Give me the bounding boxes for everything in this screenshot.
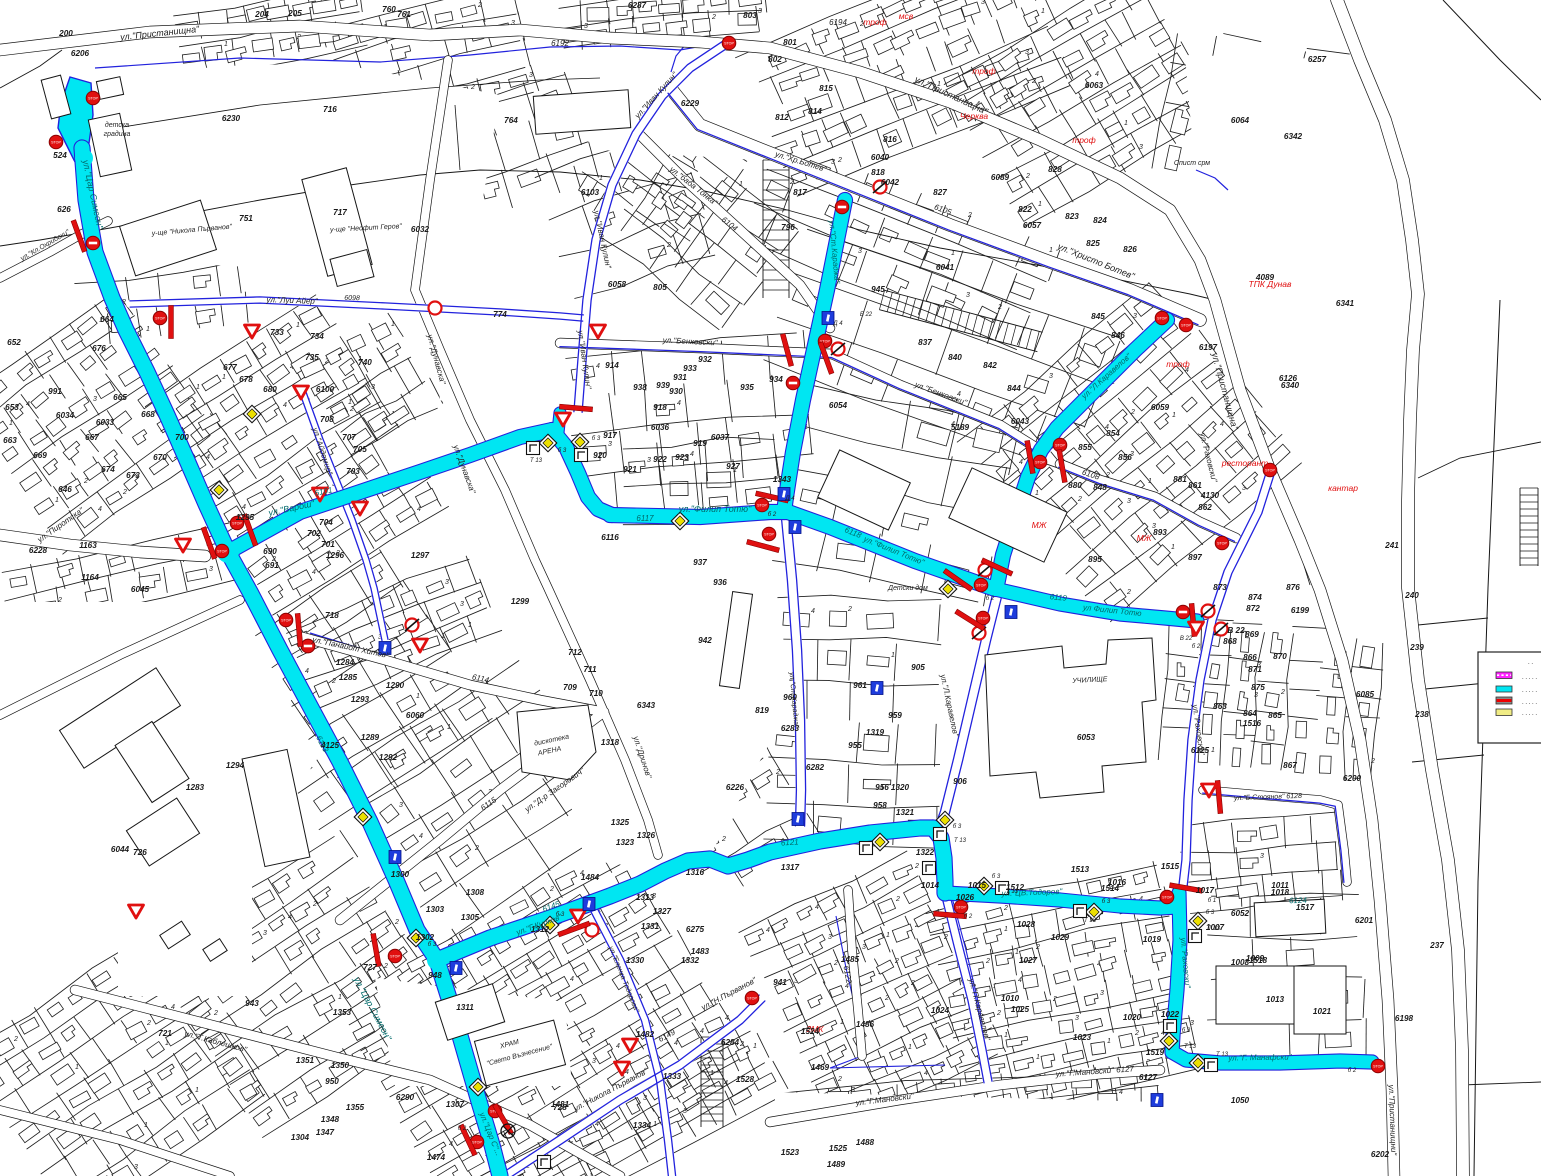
svg-text:1485: 1485 bbox=[841, 955, 860, 964]
svg-text:626: 626 bbox=[57, 205, 71, 214]
svg-text:6034: 6034 bbox=[56, 411, 75, 420]
svg-text:950: 950 bbox=[325, 1077, 339, 1086]
svg-text:2: 2 bbox=[358, 0, 363, 1]
svg-text:844: 844 bbox=[1007, 384, 1021, 393]
svg-text:1016: 1016 bbox=[1108, 878, 1127, 887]
svg-text:1: 1 bbox=[753, 1043, 757, 1050]
svg-text:824: 824 bbox=[1093, 216, 1107, 225]
svg-text:961: 961 bbox=[853, 681, 867, 690]
svg-text:869: 869 bbox=[1245, 630, 1259, 639]
svg-text:3: 3 bbox=[981, 0, 985, 6]
svg-text:Т 13: Т 13 bbox=[1216, 1052, 1229, 1058]
svg-text:691: 691 bbox=[265, 561, 279, 570]
svg-text:3: 3 bbox=[966, 292, 970, 299]
svg-text:930: 930 bbox=[669, 387, 683, 396]
svg-text:6041: 6041 bbox=[936, 263, 955, 272]
svg-text:1516: 1516 bbox=[1243, 719, 1262, 728]
svg-text:6054: 6054 bbox=[829, 401, 848, 410]
svg-text:872: 872 bbox=[1246, 604, 1260, 613]
svg-text:1: 1 bbox=[891, 652, 895, 659]
svg-text:. . . . .: . . . . . bbox=[1522, 711, 1537, 717]
svg-text:3: 3 bbox=[1025, 49, 1029, 56]
svg-text:861: 861 bbox=[1188, 481, 1202, 490]
svg-text:1330: 1330 bbox=[626, 956, 645, 965]
svg-text:1: 1 bbox=[1107, 1038, 1111, 1045]
svg-text:3: 3 bbox=[1139, 144, 1143, 151]
svg-text:2: 2 bbox=[711, 14, 716, 21]
svg-text:653: 653 bbox=[5, 403, 19, 412]
svg-text:937: 937 bbox=[693, 558, 707, 567]
svg-text:646: 646 bbox=[58, 485, 72, 494]
svg-text:детска: детска bbox=[105, 121, 129, 129]
svg-text:6064: 6064 bbox=[1231, 116, 1250, 125]
svg-text:1293: 1293 bbox=[351, 695, 370, 704]
svg-text:STOP: STOP bbox=[747, 997, 757, 1001]
svg-text:708: 708 bbox=[320, 415, 334, 424]
svg-text:4089: 4089 bbox=[1255, 273, 1275, 282]
svg-text:3: 3 bbox=[1127, 498, 1131, 505]
svg-text:градина: градина bbox=[104, 130, 131, 138]
svg-text:1481: 1481 bbox=[551, 1100, 570, 1109]
svg-text:3: 3 bbox=[584, 23, 588, 30]
svg-text:1: 1 bbox=[739, 181, 743, 188]
svg-text:1: 1 bbox=[416, 693, 420, 700]
svg-text:. . . . .: . . . . . bbox=[1522, 675, 1537, 681]
svg-text:819: 819 bbox=[755, 706, 769, 715]
svg-text:1024: 1024 bbox=[931, 1006, 950, 1015]
svg-text:2: 2 bbox=[383, 963, 388, 970]
svg-text:Т 13: Т 13 bbox=[1084, 918, 1097, 924]
svg-text:812: 812 bbox=[775, 113, 789, 122]
svg-text:6058: 6058 bbox=[608, 280, 627, 289]
svg-text:1348: 1348 bbox=[321, 1115, 340, 1124]
svg-text:2: 2 bbox=[775, 769, 780, 776]
svg-text:2: 2 bbox=[1117, 0, 1122, 2]
svg-text:897: 897 bbox=[1188, 553, 1202, 562]
svg-text:1: 1 bbox=[468, 622, 472, 629]
svg-text:1: 1 bbox=[447, 724, 451, 731]
svg-text:1474: 1474 bbox=[427, 1153, 446, 1162]
svg-text:1302: 1302 bbox=[416, 933, 435, 942]
svg-text:4: 4 bbox=[845, 983, 849, 990]
svg-text:917: 917 bbox=[603, 431, 617, 440]
svg-text:б 3: б 3 bbox=[558, 448, 567, 454]
svg-text:6341: 6341 bbox=[1336, 299, 1355, 308]
svg-text:760: 760 bbox=[382, 5, 396, 14]
svg-text:709: 709 bbox=[563, 683, 577, 692]
svg-text:524: 524 bbox=[53, 151, 67, 160]
svg-text:842: 842 bbox=[983, 361, 997, 370]
svg-text:702: 702 bbox=[307, 529, 321, 538]
svg-text:1010: 1010 bbox=[1001, 994, 1020, 1003]
svg-text:STOP: STOP bbox=[1217, 542, 1227, 546]
svg-text:6053: 6053 bbox=[1077, 733, 1096, 742]
svg-text:б 3: б 3 bbox=[556, 912, 565, 918]
svg-text:868: 868 bbox=[1223, 637, 1237, 646]
svg-text:2: 2 bbox=[967, 212, 972, 219]
svg-text:1311: 1311 bbox=[456, 1003, 474, 1012]
svg-text:1017: 1017 bbox=[1196, 886, 1215, 895]
svg-text:939: 939 bbox=[656, 381, 670, 390]
svg-text:6125: 6125 bbox=[1191, 746, 1210, 755]
svg-text:2: 2 bbox=[122, 489, 127, 496]
svg-text:921: 921 bbox=[623, 465, 637, 474]
svg-text:1: 1 bbox=[1148, 478, 1152, 485]
svg-text:825: 825 bbox=[1086, 239, 1100, 248]
svg-text:1163: 1163 bbox=[79, 541, 97, 550]
svg-text:4: 4 bbox=[449, 1141, 453, 1148]
svg-text:4: 4 bbox=[419, 833, 423, 840]
svg-text:1355: 1355 bbox=[346, 1103, 365, 1112]
svg-text:6037: 6037 bbox=[711, 433, 730, 442]
svg-text:3: 3 bbox=[862, 944, 866, 951]
svg-text:1290: 1290 bbox=[386, 681, 405, 690]
svg-text:1: 1 bbox=[1124, 120, 1128, 127]
svg-text:1303: 1303 bbox=[426, 905, 445, 914]
svg-text:2: 2 bbox=[1130, 409, 1135, 416]
svg-text:4: 4 bbox=[616, 1043, 620, 1050]
svg-text:1327: 1327 bbox=[653, 907, 672, 916]
svg-text:1: 1 bbox=[146, 326, 150, 333]
svg-text:3: 3 bbox=[263, 930, 267, 937]
svg-text:4: 4 bbox=[1019, 459, 1023, 466]
svg-text:991: 991 bbox=[48, 387, 62, 396]
svg-text:6284: 6284 bbox=[721, 1038, 740, 1047]
svg-text:3: 3 bbox=[1100, 990, 1104, 997]
svg-text:1488: 1488 bbox=[856, 1138, 875, 1147]
svg-text:1: 1 bbox=[710, 1070, 714, 1077]
svg-text:876: 876 bbox=[1286, 583, 1300, 592]
svg-text:2: 2 bbox=[1031, 78, 1036, 85]
svg-text:959: 959 bbox=[888, 711, 902, 720]
svg-text:1023: 1023 bbox=[1073, 1033, 1092, 1042]
svg-text:803: 803 bbox=[743, 11, 757, 20]
svg-text:3: 3 bbox=[460, 601, 464, 608]
svg-text:703: 703 bbox=[346, 467, 360, 476]
svg-text:6059: 6059 bbox=[1151, 403, 1170, 412]
svg-text:919: 919 bbox=[693, 439, 707, 448]
svg-text:906: 906 bbox=[953, 777, 967, 786]
svg-text:955: 955 bbox=[848, 741, 862, 750]
svg-text:6052: 6052 bbox=[1231, 909, 1250, 918]
svg-text:1: 1 bbox=[1004, 926, 1008, 933]
svg-text:932: 932 bbox=[698, 355, 712, 364]
svg-text:3: 3 bbox=[1190, 1020, 1194, 1027]
svg-text:1469: 1469 bbox=[811, 1063, 830, 1072]
svg-text:711: 711 bbox=[583, 665, 596, 674]
svg-text:3: 3 bbox=[209, 566, 213, 573]
svg-text:1285: 1285 bbox=[339, 673, 358, 682]
svg-text:1519: 1519 bbox=[1146, 1048, 1165, 1057]
svg-text:2: 2 bbox=[837, 1076, 842, 1083]
svg-text:1308: 1308 bbox=[466, 888, 485, 897]
svg-text:6199: 6199 bbox=[1291, 606, 1310, 615]
svg-text:1322: 1322 bbox=[916, 848, 935, 857]
svg-text:STOP: STOP bbox=[978, 617, 988, 621]
svg-text:4: 4 bbox=[700, 1028, 704, 1035]
svg-text:Детски дом: Детски дом bbox=[887, 584, 928, 592]
svg-text:1525: 1525 bbox=[829, 1144, 848, 1153]
svg-text:6192: 6192 bbox=[551, 39, 569, 48]
svg-text:680: 680 bbox=[263, 385, 277, 394]
svg-text:241: 241 bbox=[1384, 541, 1399, 550]
svg-text:2: 2 bbox=[1003, 905, 1008, 912]
svg-text:4: 4 bbox=[1220, 421, 1224, 428]
svg-text:761: 761 bbox=[397, 10, 411, 19]
svg-text:6057: 6057 bbox=[1023, 221, 1042, 230]
svg-text:2: 2 bbox=[1126, 589, 1131, 596]
svg-text:3: 3 bbox=[608, 441, 612, 448]
svg-text:1: 1 bbox=[1171, 544, 1175, 551]
svg-text:826: 826 bbox=[1123, 245, 1137, 254]
svg-text:3: 3 bbox=[529, 72, 533, 79]
svg-text:1297: 1297 bbox=[411, 551, 430, 560]
svg-text:933: 933 bbox=[683, 364, 697, 373]
svg-text:ул."Филип Тотю": ул."Филип Тотю" bbox=[678, 504, 752, 514]
svg-text:1: 1 bbox=[951, 250, 955, 257]
svg-text:б 2: б 2 bbox=[1348, 1068, 1357, 1074]
svg-text:1021: 1021 bbox=[1313, 1007, 1332, 1016]
svg-text:774: 774 bbox=[493, 310, 507, 319]
svg-text:866: 866 bbox=[1243, 653, 1257, 662]
svg-text:943: 943 bbox=[245, 999, 259, 1008]
svg-text:4: 4 bbox=[206, 454, 210, 461]
svg-text:938: 938 bbox=[633, 383, 647, 392]
svg-text:Д 4: Д 4 bbox=[832, 321, 843, 327]
svg-text:4: 4 bbox=[312, 569, 316, 576]
svg-text:893: 893 bbox=[1153, 528, 1167, 537]
svg-text:1: 1 bbox=[441, 633, 445, 640]
svg-text:4: 4 bbox=[283, 402, 287, 409]
svg-text:6127: 6127 bbox=[1139, 1073, 1158, 1082]
svg-text:935: 935 bbox=[740, 383, 754, 392]
svg-text:6194: 6194 bbox=[829, 18, 847, 27]
svg-text:740: 740 bbox=[358, 358, 372, 367]
svg-text:705: 705 bbox=[353, 445, 367, 454]
svg-text:751: 751 bbox=[239, 214, 253, 223]
svg-text:6257: 6257 bbox=[1308, 55, 1327, 64]
svg-text:STOP: STOP bbox=[976, 584, 986, 588]
svg-text:6226: 6226 bbox=[726, 783, 745, 792]
svg-text:664: 664 bbox=[100, 315, 114, 324]
svg-text:4: 4 bbox=[690, 451, 694, 458]
svg-text:ул."Луи Айер": ул."Луи Айер" bbox=[265, 295, 319, 306]
svg-text:3: 3 bbox=[93, 396, 97, 403]
svg-text:2: 2 bbox=[13, 1036, 18, 1043]
svg-text:б 2: б 2 bbox=[1192, 644, 1201, 650]
svg-text:STOP: STOP bbox=[1055, 444, 1065, 448]
svg-text:3: 3 bbox=[592, 1058, 596, 1065]
svg-text:1304: 1304 bbox=[291, 1133, 310, 1142]
svg-text:204: 204 bbox=[254, 10, 269, 19]
svg-text:4: 4 bbox=[766, 927, 770, 934]
svg-text:. .: . . bbox=[1528, 660, 1533, 666]
svg-text:6206: 6206 bbox=[71, 49, 90, 58]
svg-text:1015: 1015 bbox=[968, 881, 987, 890]
svg-text:2: 2 bbox=[331, 678, 336, 685]
svg-text:960: 960 bbox=[783, 693, 797, 702]
svg-text:6098: 6098 bbox=[344, 295, 360, 303]
svg-text:237: 237 bbox=[1429, 941, 1444, 950]
svg-text:2: 2 bbox=[895, 896, 900, 903]
svg-text:716: 716 bbox=[323, 105, 337, 114]
svg-text:1283: 1283 bbox=[186, 783, 205, 792]
svg-text:б 3: б 3 bbox=[992, 874, 1001, 880]
svg-text:1353: 1353 bbox=[333, 1008, 352, 1017]
svg-text:4: 4 bbox=[26, 401, 30, 408]
svg-text:1: 1 bbox=[9, 420, 13, 427]
svg-text:троф: троф bbox=[972, 66, 996, 76]
svg-text:МЖ: МЖ bbox=[1137, 533, 1153, 543]
svg-text:1: 1 bbox=[908, 1044, 912, 1051]
svg-text:1013: 1013 bbox=[1266, 995, 1285, 1004]
svg-text:МЖ: МЖ bbox=[1032, 520, 1048, 530]
svg-text:1332: 1332 bbox=[681, 956, 700, 965]
svg-text:1164: 1164 bbox=[81, 573, 99, 582]
svg-text:ул."Г. Манафски": ул."Г. Манафски" bbox=[1227, 1052, 1293, 1062]
svg-text:6121: 6121 bbox=[781, 837, 799, 847]
svg-text:6063: 6063 bbox=[1085, 81, 1104, 90]
svg-text:874: 874 bbox=[1248, 593, 1262, 602]
svg-text:674: 674 bbox=[101, 465, 115, 474]
svg-text:4: 4 bbox=[674, 1040, 678, 1047]
svg-text:4: 4 bbox=[924, 1070, 928, 1077]
svg-text:2: 2 bbox=[1370, 758, 1375, 765]
svg-text:В 22: В 22 bbox=[1180, 636, 1193, 642]
svg-text:707: 707 bbox=[342, 433, 356, 442]
svg-text:914: 914 bbox=[605, 361, 619, 370]
svg-text:2: 2 bbox=[884, 995, 889, 1002]
svg-text:840: 840 bbox=[948, 353, 962, 362]
svg-text:1027: 1027 bbox=[1019, 956, 1038, 965]
svg-text:б 2: б 2 bbox=[768, 512, 777, 518]
svg-text:6043: 6043 bbox=[1011, 417, 1030, 426]
svg-text:240: 240 bbox=[1404, 591, 1419, 600]
svg-text:3: 3 bbox=[1254, 692, 1258, 699]
svg-text:4125: 4125 bbox=[320, 741, 340, 750]
svg-text:1483: 1483 bbox=[691, 947, 710, 956]
svg-text:1050: 1050 bbox=[1231, 1096, 1250, 1105]
svg-text:6044: 6044 bbox=[111, 845, 130, 854]
svg-text:865: 865 bbox=[1268, 711, 1282, 720]
svg-text:1350: 1350 bbox=[331, 1061, 350, 1070]
svg-text:4: 4 bbox=[1018, 977, 1022, 984]
svg-text:3: 3 bbox=[758, 8, 762, 15]
svg-text:б 2: б 2 bbox=[964, 914, 973, 920]
svg-text:6089: 6089 bbox=[991, 173, 1010, 182]
svg-text:701: 701 bbox=[321, 540, 335, 549]
svg-text:3: 3 bbox=[828, 934, 832, 941]
svg-text:1009: 1009 bbox=[1246, 954, 1265, 963]
svg-text:6197: 6197 bbox=[1199, 343, 1218, 352]
svg-text:870: 870 bbox=[1273, 652, 1287, 661]
svg-text:3: 3 bbox=[1075, 1015, 1079, 1022]
svg-text:6202: 6202 bbox=[1371, 1150, 1390, 1159]
svg-text:880: 880 bbox=[1068, 481, 1082, 490]
svg-text:678: 678 bbox=[239, 375, 253, 384]
svg-text:6290: 6290 bbox=[396, 1093, 415, 1102]
svg-text:2: 2 bbox=[1280, 689, 1285, 696]
svg-text:. . . . .: . . . . . bbox=[1522, 700, 1537, 706]
svg-text:Т 13: Т 13 bbox=[1006, 889, 1019, 895]
svg-text:6085: 6085 bbox=[1356, 690, 1375, 699]
svg-text:848: 848 bbox=[1093, 483, 1107, 492]
svg-text:1: 1 bbox=[224, 41, 228, 48]
svg-text:922: 922 bbox=[653, 455, 667, 464]
svg-text:1: 1 bbox=[1038, 201, 1042, 208]
svg-text:3: 3 bbox=[399, 802, 403, 809]
svg-text:Спист срм: Спист срм bbox=[1174, 160, 1210, 167]
svg-text:B 22: B 22 bbox=[1227, 626, 1245, 635]
svg-text:2: 2 bbox=[833, 960, 838, 967]
svg-text:2: 2 bbox=[1077, 496, 1082, 503]
svg-text:1019: 1019 bbox=[1143, 935, 1162, 944]
svg-text:814: 814 bbox=[808, 107, 822, 116]
svg-text:кантар: кантар bbox=[1328, 483, 1358, 493]
svg-text:704: 704 bbox=[319, 518, 333, 527]
svg-text:2: 2 bbox=[996, 1010, 1001, 1017]
svg-text:3: 3 bbox=[1133, 313, 1137, 320]
svg-text:1: 1 bbox=[222, 374, 226, 381]
svg-text:6103: 6103 bbox=[581, 188, 600, 197]
svg-text:1347: 1347 bbox=[316, 1128, 335, 1137]
svg-text:2: 2 bbox=[549, 886, 554, 893]
svg-text:1011: 1011 bbox=[1271, 881, 1289, 890]
svg-text:3: 3 bbox=[831, 159, 835, 166]
svg-text:945: 945 bbox=[871, 285, 885, 294]
svg-text:4: 4 bbox=[677, 400, 681, 407]
svg-text:828: 828 bbox=[1048, 165, 1062, 174]
svg-text:2: 2 bbox=[721, 836, 726, 843]
svg-text:1020: 1020 bbox=[1123, 1013, 1142, 1022]
svg-text:1: 1 bbox=[1041, 8, 1045, 15]
svg-text:4: 4 bbox=[725, 1015, 729, 1022]
svg-text:6201: 6201 bbox=[1355, 916, 1374, 925]
svg-text:3: 3 bbox=[647, 457, 651, 464]
svg-text:4130: 4130 bbox=[1200, 491, 1220, 500]
svg-text:733: 733 bbox=[270, 328, 284, 337]
svg-text:958: 958 bbox=[873, 801, 887, 810]
svg-text:2: 2 bbox=[213, 1010, 218, 1017]
svg-text:4: 4 bbox=[242, 504, 246, 511]
svg-text:2: 2 bbox=[847, 606, 852, 613]
svg-text:2: 2 bbox=[1035, 944, 1040, 951]
svg-text:4: 4 bbox=[305, 668, 309, 675]
svg-text:837: 837 bbox=[918, 338, 932, 347]
svg-text:1316: 1316 bbox=[686, 868, 705, 877]
svg-text:1486: 1486 bbox=[856, 1020, 875, 1029]
svg-text:6117: 6117 bbox=[636, 514, 654, 523]
svg-text:STOP: STOP bbox=[472, 1141, 482, 1145]
svg-text:6198: 6198 bbox=[1395, 1014, 1414, 1023]
svg-text:1307: 1307 bbox=[446, 1100, 465, 1109]
svg-text:б 1: б 1 bbox=[1208, 898, 1216, 904]
svg-text:673: 673 bbox=[126, 471, 140, 480]
svg-text:918: 918 bbox=[653, 403, 667, 412]
svg-text:845: 845 bbox=[1091, 312, 1105, 321]
svg-text:2: 2 bbox=[474, 845, 479, 852]
svg-text:6042: 6042 bbox=[881, 178, 900, 187]
svg-text:1026: 1026 bbox=[956, 893, 975, 902]
svg-text:1343: 1343 bbox=[773, 475, 792, 484]
svg-text:STOP: STOP bbox=[757, 504, 767, 508]
svg-text:3: 3 bbox=[371, 384, 375, 391]
svg-text:6275: 6275 bbox=[686, 925, 705, 934]
svg-text:801: 801 bbox=[783, 38, 797, 47]
svg-text:1331: 1331 bbox=[641, 922, 660, 931]
svg-text:б 3: б 3 bbox=[1102, 899, 1111, 905]
svg-text:2: 2 bbox=[837, 157, 842, 164]
